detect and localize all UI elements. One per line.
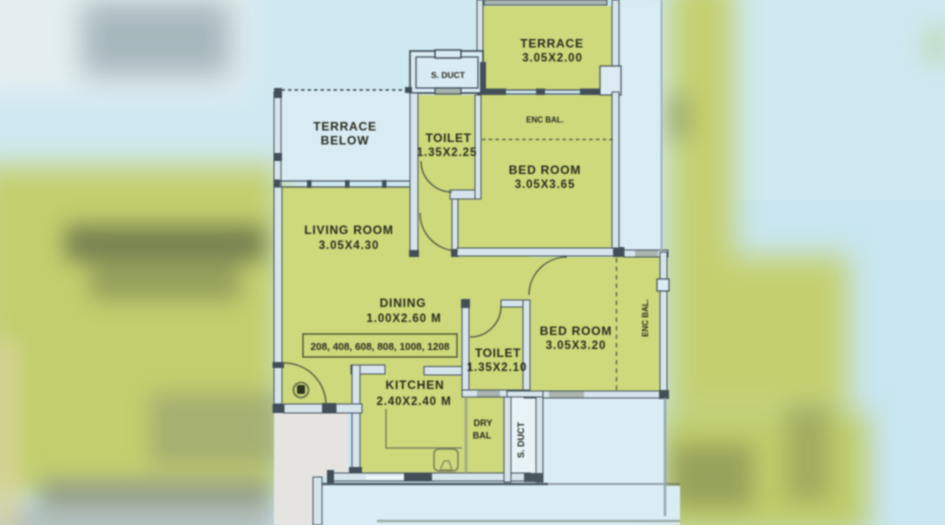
svg-text:3.05X3.65: 3.05X3.65 [515,179,576,191]
svg-text:3.05X4.30: 3.05X4.30 [319,240,380,252]
svg-text:TOILET: TOILET [425,131,471,145]
svg-text:DRY: DRY [474,418,493,428]
svg-text:TOILET: TOILET [475,346,521,360]
svg-text:3.05X3.20: 3.05X3.20 [546,340,607,352]
svg-text:3.05X2.00: 3.05X2.00 [522,53,583,65]
svg-text:BAL: BAL [473,431,492,441]
svg-text:1.35X2.25: 1.35X2.25 [417,147,478,159]
svg-text:ENC BAL.: ENC BAL. [526,116,564,125]
svg-text:1.35X2.10: 1.35X2.10 [467,362,528,374]
svg-text:1.00X2.60 M: 1.00X2.60 M [366,313,441,325]
svg-text:S. DUCT: S. DUCT [431,70,466,80]
svg-text:TERRACE: TERRACE [313,120,377,134]
svg-text:DINING: DINING [380,296,427,310]
svg-text:BED ROOM: BED ROOM [509,163,581,177]
svg-text:ENC BAL.: ENC BAL. [641,299,650,337]
svg-text:TERRACE: TERRACE [520,37,584,51]
svg-text:2.40X2.40 M: 2.40X2.40 M [376,396,451,408]
svg-text:S. DUCT: S. DUCT [516,421,526,458]
svg-text:LIVING ROOM: LIVING ROOM [304,223,393,237]
svg-text:BED ROOM: BED ROOM [540,324,612,338]
svg-text:KITCHEN: KITCHEN [386,378,445,392]
svg-text:BELOW: BELOW [321,134,370,148]
svg-text:208, 408, 608, 808, 1008, 1208: 208, 408, 608, 808, 1008, 1208 [310,342,449,353]
